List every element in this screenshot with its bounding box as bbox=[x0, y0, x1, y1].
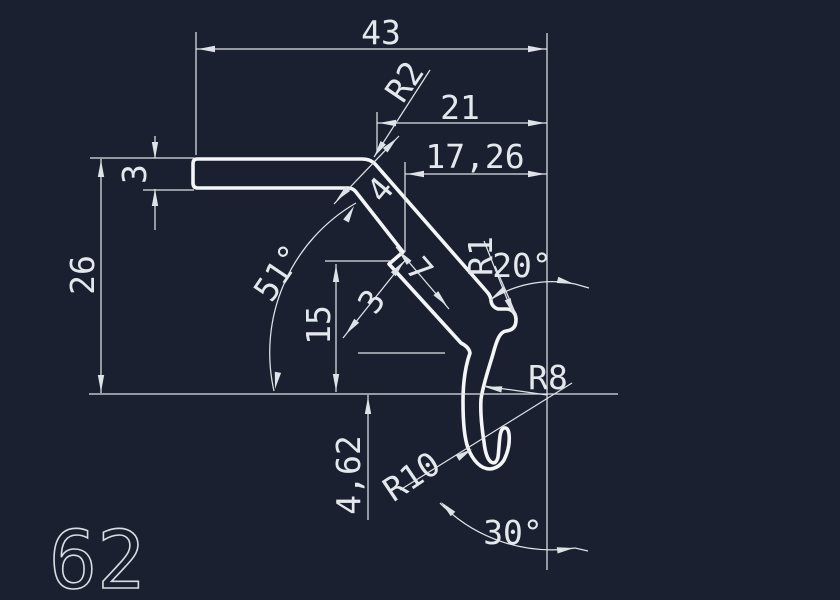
dim-text-15: 15 bbox=[299, 305, 338, 345]
cad-canvas: 43 R2 21 17,26 3 26 51° 4 15 3 7 R1 20° … bbox=[0, 0, 840, 600]
dim-text-43: 43 bbox=[361, 13, 401, 52]
profile-number: 62 bbox=[49, 514, 145, 600]
dim-text-17-26: 17,26 bbox=[425, 137, 524, 176]
dim-text-26: 26 bbox=[63, 255, 102, 295]
dim-text-30deg: 30° bbox=[483, 513, 543, 552]
dim-text-20deg: 20° bbox=[492, 246, 552, 285]
dim-text-r8: R8 bbox=[528, 358, 568, 397]
dim-text-4-62: 4,62 bbox=[329, 435, 368, 514]
cad-viewport: 43 R2 21 17,26 3 26 51° 4 15 3 7 R1 20° … bbox=[0, 0, 840, 600]
dim-text-3-bar: 3 bbox=[115, 164, 154, 184]
dim-text-21: 21 bbox=[440, 88, 480, 127]
